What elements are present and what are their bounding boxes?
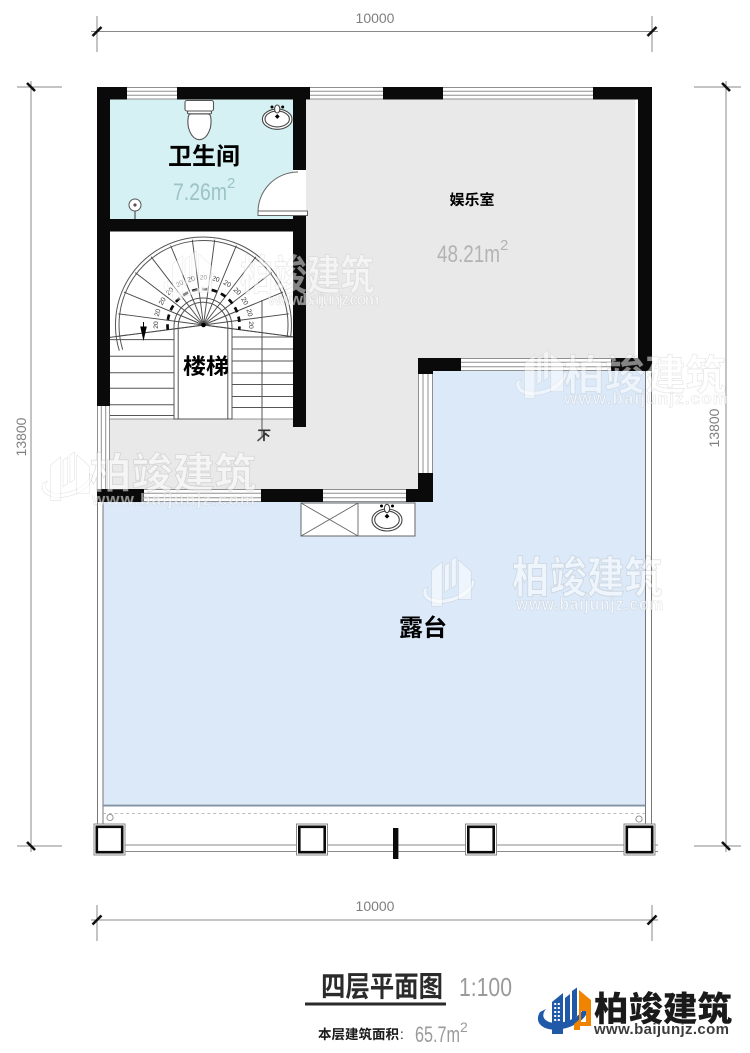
svg-text:10000: 10000 bbox=[356, 10, 395, 26]
svg-text::: : bbox=[400, 1027, 404, 1042]
svg-text:48.21m: 48.21m bbox=[437, 241, 500, 268]
svg-text:www.baijunjz.com: www.baijunjz.com bbox=[91, 490, 256, 509]
svg-text:1:100: 1:100 bbox=[459, 972, 512, 1002]
svg-text:20: 20 bbox=[153, 321, 160, 329]
svg-text:20: 20 bbox=[247, 321, 254, 329]
svg-text:2: 2 bbox=[500, 237, 508, 254]
svg-text:www.baijunjz.com: www.baijunjz.com bbox=[563, 389, 729, 408]
svg-text:7.26m: 7.26m bbox=[173, 179, 227, 206]
svg-text:2: 2 bbox=[460, 1019, 468, 1035]
svg-text:2: 2 bbox=[227, 175, 235, 192]
svg-text:www.baijunjz.com: www.baijunjz.com bbox=[593, 1021, 729, 1038]
svg-text:13800: 13800 bbox=[13, 417, 29, 456]
svg-text:www.baijunjz.com: www.baijunjz.com bbox=[267, 290, 380, 309]
svg-text:10000: 10000 bbox=[356, 898, 395, 914]
svg-text:13800: 13800 bbox=[706, 408, 722, 447]
svg-text:65.7m: 65.7m bbox=[415, 1022, 460, 1047]
svg-text:www.baijunjz.com: www.baijunjz.com bbox=[515, 594, 664, 614]
